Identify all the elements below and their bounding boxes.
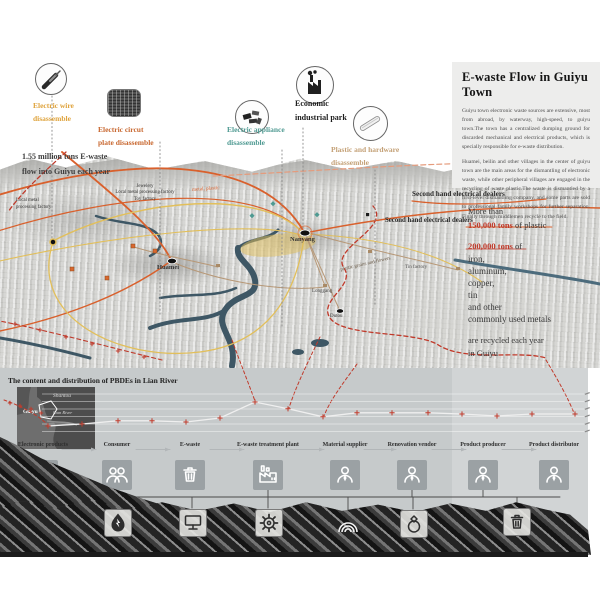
label-electric-wire: Electric wire disassemble <box>33 99 107 125</box>
label-dealers-2: Second hand electrical dealers <box>385 217 473 224</box>
plastic-unit: of plastic <box>513 220 547 230</box>
label-dealers-1: Second hand electrical dealers <box>412 190 505 198</box>
lian-river-inset-map: Shantou Guiyu Lian River <box>17 387 95 449</box>
metal-amount: 200,000 tons <box>468 241 513 251</box>
place-longgang: Longgang <box>312 289 332 294</box>
metal-item: commonly used metals <box>468 314 592 325</box>
flow-station-label: Product distributor <box>522 441 586 459</box>
flow-station-label: Renovation vendor <box>380 441 444 459</box>
computer-icon <box>179 509 207 537</box>
people-icon <box>102 460 132 490</box>
label-factory-cluster: Jewelery Local metal processing factory … <box>103 184 187 203</box>
metal-item: tin <box>468 290 592 301</box>
metal-item: iron, <box>468 254 592 265</box>
metal-item: copper, <box>468 278 592 289</box>
trash-icon <box>175 460 205 490</box>
stats-lead: More than <box>468 206 592 217</box>
recycling-stats: More than 150,000 tons of plastic 200,00… <box>468 206 592 361</box>
flow-station-label: Consumer <box>85 441 149 459</box>
plant-icon <box>253 460 283 490</box>
place-huamei: Huamei <box>157 264 179 271</box>
intro-panel: E-waste Flow in Guiyu Town Guiyu town el… <box>452 62 600 188</box>
wire-icon <box>35 63 67 95</box>
flow-station-label: Product producer <box>451 441 515 459</box>
flow-station-renovation-vendor: Renovation vendor <box>380 441 444 490</box>
flow-station-label: E-waste treatment plant <box>236 441 300 459</box>
flow-station-product-producer: Product producer <box>451 441 515 490</box>
label-tin-factory: Tin factory <box>405 265 427 270</box>
label-factory-left: Local metal processing factory <box>16 197 51 211</box>
metal-item: and other <box>468 302 592 313</box>
inset-label-lian-river: Lian River <box>53 410 72 415</box>
metal-unit: of <box>513 241 522 251</box>
label-electric-appliance: Electric appliance disassemble <box>227 123 313 149</box>
stats-closing: are recycled each year in Guiyu <box>468 334 592 361</box>
label-electric-circuit: Electric circut plate disassemble <box>98 123 182 149</box>
person-icon <box>330 460 360 490</box>
person-icon <box>468 460 498 490</box>
trash-icon <box>503 508 531 536</box>
flow-station-product-distributor: Product distributor <box>522 441 586 490</box>
person-icon <box>397 460 427 490</box>
ewaste-infographic-poster: Shantou Guiyu Lian River <box>0 0 600 600</box>
debris-baseline <box>0 552 588 557</box>
arcs-icon <box>335 511 361 537</box>
ring-icon <box>400 510 428 538</box>
flow-station-e-waste-treatment-plant: E-waste treatment plant <box>236 441 300 490</box>
metal-list: iron,aluminum,copper,tinand othercommonl… <box>468 254 592 325</box>
poster-title: E-waste Flow in Guiyu Town <box>462 70 590 100</box>
chart-title: The content and distribution of PBDEs in… <box>8 376 178 385</box>
person-icon <box>539 460 569 490</box>
place-dutou: Dutou <box>330 314 343 319</box>
flow-station-material-supplier: Material supplier <box>313 441 377 490</box>
flow-station-label: E-waste <box>158 441 222 459</box>
flow-station-e-waste: E-waste <box>158 441 222 490</box>
inflow-note: 1.55 million tons E-waste flow into Guiy… <box>22 149 142 179</box>
metal-item: aluminum, <box>468 266 592 277</box>
flow-station-label: Material supplier <box>313 441 377 459</box>
circuit-board-icon <box>107 89 141 117</box>
energy-drop-icon <box>104 509 132 537</box>
inset-label-guiyu: Guiyu <box>23 409 38 415</box>
label-industrial-park: Economic industrial park <box>295 97 365 125</box>
gear-icon <box>255 509 283 537</box>
inset-label-shantou: Shantou <box>53 393 71 399</box>
plastic-amount: 150,000 tons <box>468 220 513 230</box>
place-nanyang: Nanyang <box>290 236 315 243</box>
label-plastic-hardware: Plastic and hardware disassemble <box>331 143 435 169</box>
intro-paragraph-1: Guiyu town electronic waste sources are … <box>462 107 590 152</box>
